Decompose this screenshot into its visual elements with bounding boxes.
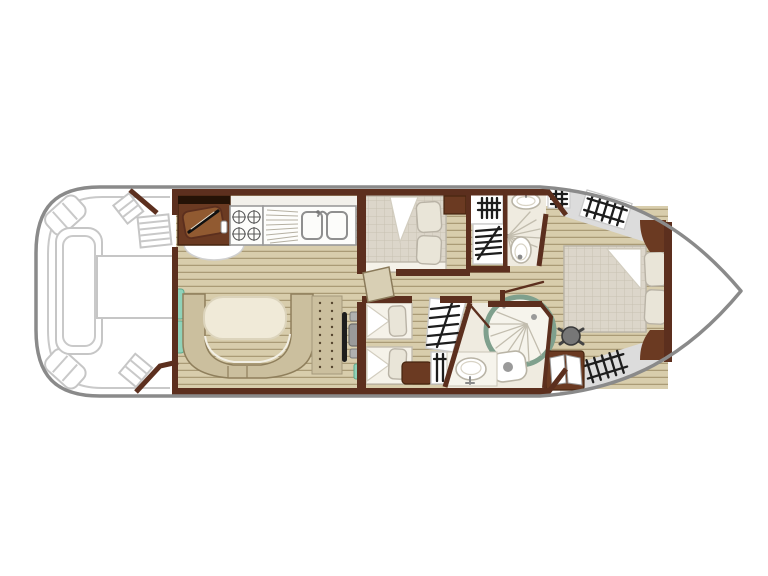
wall-twin-cabin — [440, 296, 472, 303]
pillow — [416, 201, 442, 233]
pillow — [416, 235, 441, 264]
sink-unit — [263, 206, 356, 245]
wall-port-aft — [172, 195, 178, 215]
cabin-cabinet — [402, 362, 432, 384]
wall-bathroom-top — [503, 192, 508, 271]
boat-plan-svg — [0, 0, 768, 576]
dinette-table — [204, 297, 286, 339]
door-leaf-saloon-corridor — [363, 267, 394, 302]
wall-port — [172, 247, 178, 389]
bow-bulkhead — [664, 222, 672, 362]
stool-icon — [559, 327, 583, 345]
pillow — [388, 306, 407, 337]
companionway-steps-aft — [138, 214, 172, 247]
wall-galley-cabin — [357, 189, 366, 274]
wall-stairs — [466, 190, 471, 272]
aft-deck-table — [97, 256, 173, 318]
sink-basin — [327, 212, 347, 239]
stairs-forward — [470, 192, 504, 264]
galley-cabinet-top-band — [178, 196, 230, 204]
boat-floor-plan — [0, 0, 768, 576]
wall-saloon-twin — [357, 302, 366, 390]
dinette — [175, 289, 313, 378]
helm-sideboard — [312, 296, 342, 374]
helm-wheel — [342, 312, 347, 362]
wall-corridor — [466, 266, 510, 273]
stove — [230, 206, 263, 245]
cabin-cabinet — [444, 196, 466, 214]
wall-double-cabin — [396, 269, 470, 276]
wall-bathroom-bottom-top — [488, 301, 542, 307]
shaker — [221, 221, 227, 233]
